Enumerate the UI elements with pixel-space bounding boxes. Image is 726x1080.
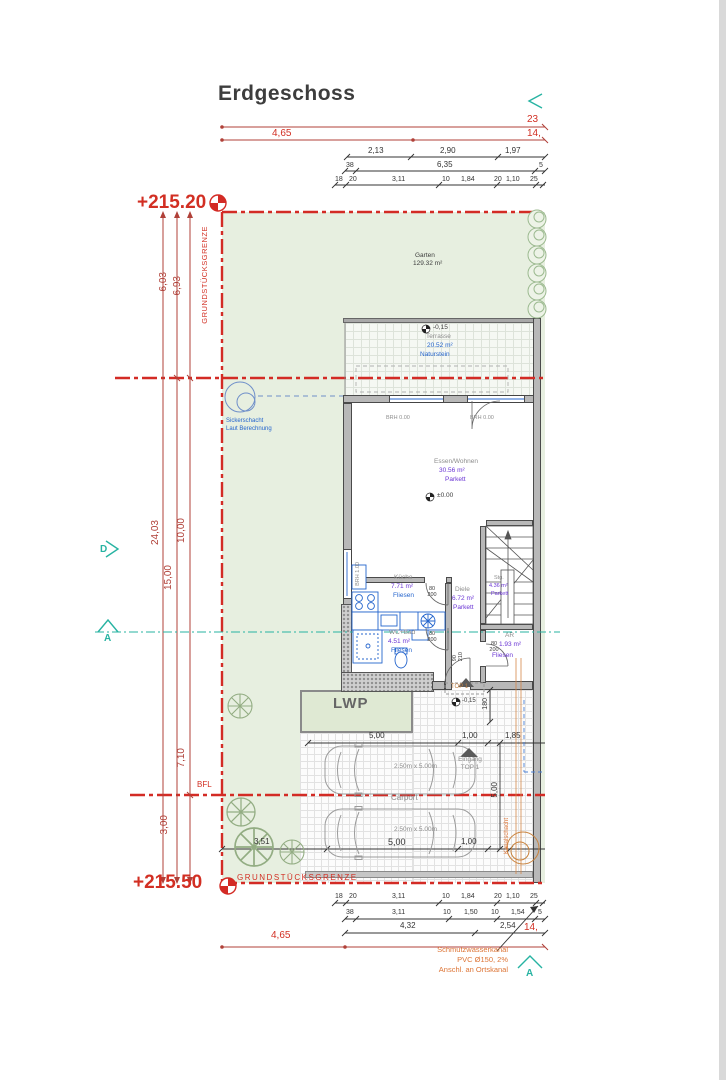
dim-label: 20 bbox=[349, 893, 357, 901]
dim-label: 20 bbox=[349, 176, 357, 184]
dim-label: 5 bbox=[539, 162, 543, 170]
note-arrowhead bbox=[530, 906, 538, 913]
door-size-label: 80 200 bbox=[487, 641, 501, 653]
terrace-finish: Naturstein bbox=[420, 351, 450, 358]
level-marker-icon bbox=[452, 698, 460, 706]
door-size-label: 80 200 bbox=[425, 586, 439, 598]
dim-label: 1,00 bbox=[462, 732, 478, 741]
sewer-shaft-label: Kanalschacht bbox=[504, 818, 511, 854]
bfl-label: BFL bbox=[197, 781, 212, 790]
lwp-label: LWP bbox=[333, 696, 369, 713]
room-finish: Fliesen bbox=[391, 647, 412, 654]
section-label-a: A bbox=[526, 968, 533, 979]
dim-label: 2,90 bbox=[440, 147, 456, 156]
dim-label: 3,11 bbox=[392, 176, 405, 184]
room-name: WC+Bad bbox=[389, 629, 415, 636]
bush-icon bbox=[528, 210, 546, 228]
page-title: Erdgeschoss bbox=[218, 82, 355, 106]
floorplan-canvas: Erdgeschoss 23 4,65 14, 2,13 2,90 1,97 3… bbox=[0, 0, 726, 1080]
window-sill-label: BRH 1.00 bbox=[355, 562, 361, 586]
terrace-name: Terrasse bbox=[426, 333, 451, 340]
section-label-a: A bbox=[104, 633, 111, 644]
room-area: 30.56 m² bbox=[439, 467, 465, 474]
entrance-label: Eingang bbox=[450, 756, 490, 763]
dim-label: 1,50 bbox=[464, 909, 478, 917]
dim-label: 4,65 bbox=[271, 930, 290, 941]
dim-label: 5,00 bbox=[369, 732, 385, 741]
dim-label: 10 bbox=[442, 893, 450, 901]
top1-label: TOP 1 bbox=[451, 684, 468, 691]
dim-label: 14, bbox=[527, 128, 541, 139]
door-size-label: 80 200 bbox=[425, 631, 439, 643]
room-finish: Parkett bbox=[445, 476, 466, 483]
dim-label: 18 bbox=[335, 176, 343, 184]
room-name: AR bbox=[505, 632, 514, 639]
dim-label: 1,00 bbox=[461, 838, 477, 847]
dim-label: 1,54 bbox=[511, 909, 525, 917]
dim-label: 1,84 bbox=[461, 176, 475, 184]
dim-label: 4,32 bbox=[400, 922, 416, 931]
room-level: ±0.00 bbox=[437, 492, 453, 499]
dim-label: 20 bbox=[494, 176, 502, 184]
room-area: 6.72 m² bbox=[452, 595, 474, 602]
plan-linework bbox=[0, 0, 726, 1080]
garden-name: Garten bbox=[415, 252, 435, 259]
window-sill-label: BRH 0.00 bbox=[470, 415, 494, 421]
top1-level: -0,15 bbox=[462, 698, 476, 705]
dim-label: 1,10 bbox=[506, 176, 520, 184]
boundary-label: GRUNDSTÜCKSGRENZE bbox=[201, 226, 209, 324]
carport-label: Carport bbox=[391, 794, 418, 803]
window-sill-label: BRH 0.00 bbox=[386, 415, 410, 421]
sewer-note: Anschl. an Ortskanal bbox=[418, 966, 508, 974]
tree-icon bbox=[235, 828, 273, 866]
dim-label: 10,00 bbox=[176, 518, 187, 543]
dim-label: 3,51 bbox=[254, 838, 270, 847]
dim-label: 10 bbox=[443, 909, 451, 917]
room-finish: Fliesen bbox=[393, 592, 414, 599]
dim-label: 5,00 bbox=[388, 837, 406, 847]
bush-icon bbox=[528, 228, 546, 246]
room-name: Küche bbox=[394, 574, 412, 581]
dim-label: 38 bbox=[346, 909, 354, 917]
section-label-d: D bbox=[100, 544, 107, 555]
dim-label: 23 bbox=[527, 114, 538, 125]
sewer-note: Schmutzwasserkanal bbox=[418, 946, 508, 954]
sewer-lines bbox=[507, 658, 539, 874]
tree-icon bbox=[228, 694, 252, 718]
room-name: Diele bbox=[455, 586, 470, 593]
tree-icon bbox=[227, 798, 255, 826]
car-size-label: 2.50m x 5.00m bbox=[394, 763, 437, 770]
sewer-note: PVC Ø150, 2% bbox=[418, 956, 508, 964]
dim-label: 6,35 bbox=[437, 161, 453, 170]
dim-label: 5 bbox=[538, 909, 542, 917]
dim-label: 24,03 bbox=[150, 520, 161, 545]
dim-label: 18 bbox=[335, 893, 343, 901]
survey-marker-icon bbox=[210, 195, 226, 211]
dim-label: 1,85 bbox=[505, 732, 521, 741]
survey-marker-icon bbox=[220, 878, 236, 894]
dim-label: 6,03 bbox=[158, 272, 169, 291]
dim-label: 10 bbox=[442, 176, 450, 184]
level-marker-icon bbox=[426, 493, 434, 501]
dim-label: 15,00 bbox=[163, 565, 174, 590]
room-finish: Parkett bbox=[491, 591, 508, 597]
room-area: 7.71 m² bbox=[391, 583, 413, 590]
room-finish: Parkett bbox=[453, 604, 474, 611]
dim-label: 25 bbox=[530, 893, 538, 901]
dim-label: 180 bbox=[482, 698, 490, 710]
level-marker-icon bbox=[422, 325, 430, 333]
room-area: 4.51 m² bbox=[388, 638, 410, 645]
soakaway-icon bbox=[225, 382, 343, 412]
red-dimension-dots bbox=[160, 125, 415, 949]
garden-area: 129.32 m² bbox=[413, 260, 442, 267]
dim-label: 7,10 bbox=[176, 748, 187, 767]
dim-label: 1,97 bbox=[505, 147, 521, 156]
boundary-label: GRUNDSTÜCKSGRENZE bbox=[237, 874, 358, 883]
dim-label: 3,11 bbox=[392, 893, 405, 901]
dim-label: 1,10 bbox=[506, 893, 520, 901]
dim-label: 38 bbox=[346, 162, 354, 170]
dim-label: 6,93 bbox=[172, 276, 183, 295]
elevation-label: +215.20 bbox=[137, 192, 206, 213]
utility-line-blue bbox=[524, 700, 545, 772]
dim-label: 3,11 bbox=[392, 909, 405, 917]
terrace-area: 20.52 m² bbox=[427, 342, 453, 349]
page-edge-strip bbox=[719, 0, 726, 1080]
dim-label: 3,00 bbox=[159, 815, 170, 834]
dim-label: 14, bbox=[524, 922, 538, 933]
room-name: Essen/Wohnen bbox=[434, 458, 478, 465]
bush-icon bbox=[528, 246, 546, 264]
soakaway-label: Laut Berechnung bbox=[226, 426, 272, 433]
room-name: Stg. bbox=[494, 575, 504, 581]
bush-icon bbox=[528, 282, 546, 300]
boundary-lines bbox=[115, 212, 545, 883]
door-size-label: 90 210 bbox=[452, 652, 464, 661]
tree-icon bbox=[280, 840, 304, 864]
dim-label: 10 bbox=[491, 909, 499, 917]
dim-label: 2,13 bbox=[368, 147, 384, 156]
entrance-label: TOP 1 bbox=[450, 764, 490, 771]
elevation-label: +215.50 bbox=[133, 872, 202, 893]
dim-label: 4,65 bbox=[272, 128, 291, 139]
dim-label: 1,84 bbox=[461, 893, 475, 901]
dim-label: 20 bbox=[494, 893, 502, 901]
dim-label: 5,00 bbox=[491, 782, 500, 798]
bush-icon bbox=[528, 264, 546, 282]
dim-label: 25 bbox=[530, 176, 538, 184]
room-area: 1.93 m² bbox=[499, 641, 521, 648]
car-size-label: 2.50m x 5.00m bbox=[394, 826, 437, 833]
terrace-level: -0,15 bbox=[433, 324, 448, 331]
bush-icon bbox=[528, 300, 546, 318]
dim-label: 2,54 bbox=[500, 922, 516, 931]
soakaway-label: Sickerschacht bbox=[226, 418, 263, 425]
room-area: 4.36 m² bbox=[489, 583, 508, 589]
